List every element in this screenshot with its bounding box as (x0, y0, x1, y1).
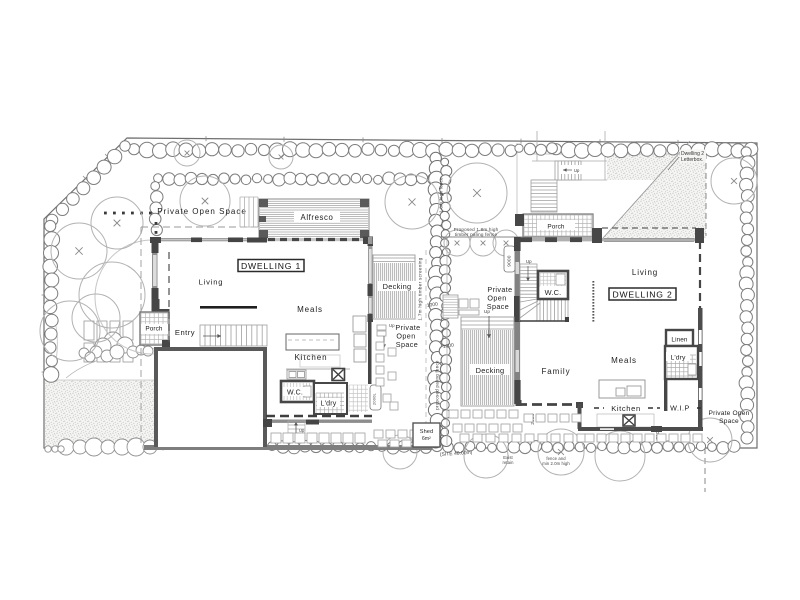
svg-text:L'dry: L'dry (321, 401, 337, 408)
svg-text:Private Open: Private Open (709, 410, 750, 417)
svg-text:Alfresco: Alfresco (301, 213, 334, 222)
svg-text:Kitchen: Kitchen (295, 353, 328, 362)
svg-text:Up: Up (574, 168, 580, 173)
svg-text:proposed paling fence: proposed paling fence (435, 360, 440, 410)
svg-text:Up: Up (299, 428, 305, 433)
svg-text:Up: Up (389, 323, 395, 328)
svg-text:Space: Space (396, 340, 418, 349)
svg-text:W.I.P: W.I.P (670, 404, 690, 413)
svg-text:Space: Space (719, 418, 739, 425)
svg-text:1.7m high timber screening: 1.7m high timber screening (418, 257, 423, 320)
svg-text:Letterbox.: Letterbox. (681, 157, 703, 163)
svg-text:2000L: 2000L (373, 393, 377, 405)
svg-text:Meals: Meals (611, 356, 637, 365)
svg-text:Shed: Shed (420, 429, 433, 435)
svg-text:Space: Space (487, 302, 509, 311)
svg-text:Living: Living (199, 278, 224, 287)
svg-text:Up: Up (526, 259, 532, 264)
svg-text:Private Open Space: Private Open Space (157, 207, 247, 216)
svg-text:L'dry: L'dry (670, 355, 686, 362)
svg-text:Meals: Meals (297, 305, 323, 314)
svg-text:Porch: Porch (547, 224, 565, 231)
svg-text:Porch: Porch (145, 326, 163, 333)
svg-text:DWELLING 2: DWELLING 2 (612, 289, 672, 299)
svg-text:Entry: Entry (175, 328, 195, 337)
svg-text:DWELLING 1: DWELLING 1 (241, 261, 301, 271)
svg-text:W.C.: W.C. (545, 288, 562, 297)
svg-text:timber paling fence: timber paling fence (455, 232, 498, 237)
svg-text:Decking: Decking (383, 282, 412, 291)
svg-text:Linen: Linen (671, 337, 687, 344)
svg-text:9000: 9000 (507, 255, 512, 267)
svg-text:1.8m high fence: 1.8m high fence (439, 177, 444, 213)
svg-text:W.C.: W.C. (287, 390, 303, 397)
svg-text:6m²: 6m² (422, 436, 431, 442)
svg-text:Kitchen: Kitchen (611, 404, 641, 413)
svg-text:Decking: Decking (476, 366, 505, 375)
svg-text:min 2.0m high: min 2.0m high (542, 461, 570, 466)
svg-text:Living: Living (632, 268, 658, 277)
svg-text:Family: Family (542, 367, 571, 376)
svg-text:retain: retain (502, 460, 514, 465)
